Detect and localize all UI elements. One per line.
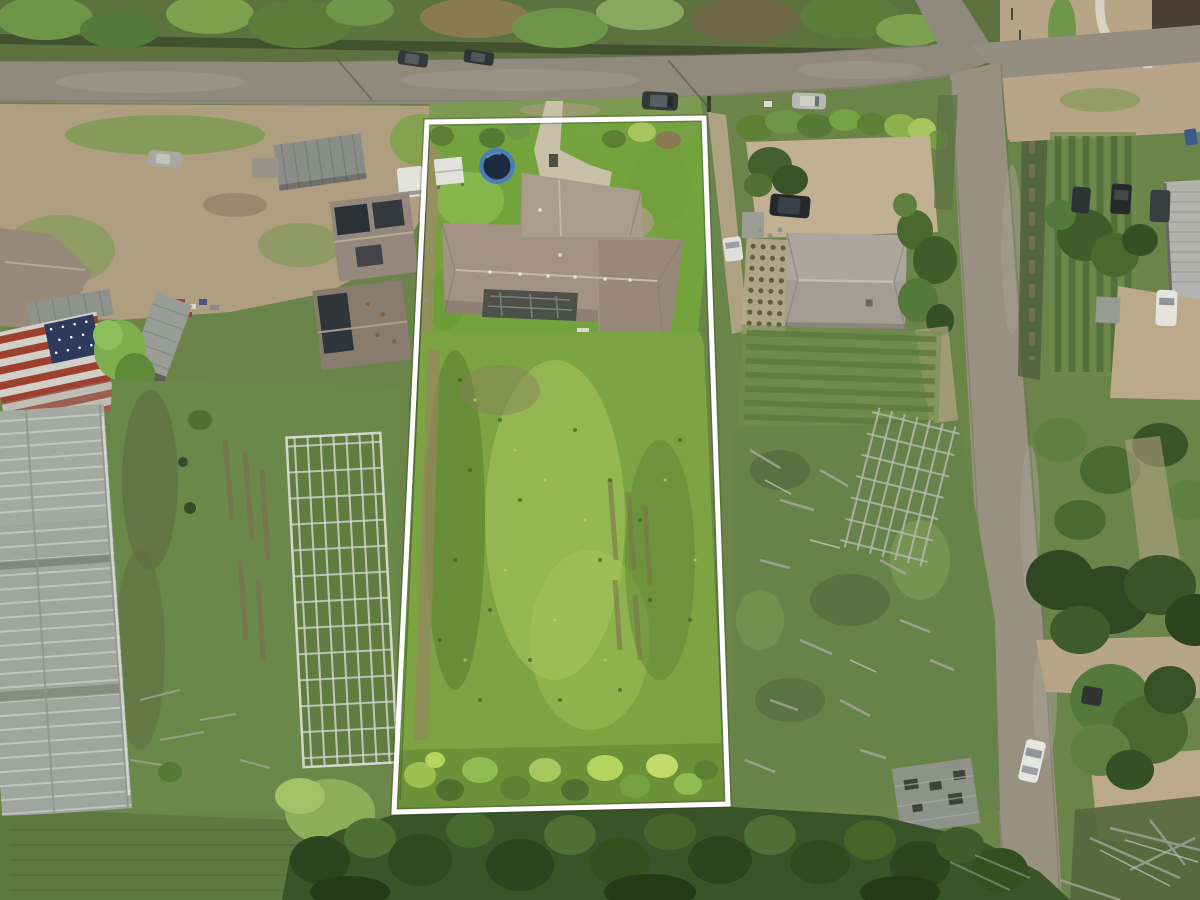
tree bbox=[544, 815, 596, 855]
parked-car-dark-1 bbox=[1071, 186, 1091, 213]
tree bbox=[446, 812, 494, 848]
tree bbox=[486, 839, 554, 891]
parked-car-dark-3 bbox=[1149, 190, 1170, 223]
parked-car-dark-2 bbox=[1110, 183, 1132, 214]
bush bbox=[1054, 500, 1106, 540]
collapsed-patio bbox=[482, 289, 578, 321]
parked-car-under-tree bbox=[1081, 685, 1104, 706]
roof-north-slope bbox=[786, 233, 907, 282]
roof-ridge bbox=[798, 280, 894, 282]
trash-bin bbox=[549, 154, 558, 167]
hedge-bush bbox=[620, 774, 650, 798]
tree bbox=[844, 820, 896, 860]
white-car-neighbor bbox=[722, 236, 743, 262]
dry-brush bbox=[690, 0, 800, 42]
chimney bbox=[866, 299, 873, 306]
dark-object bbox=[184, 502, 196, 514]
tree bbox=[1144, 666, 1196, 714]
hedge-bush bbox=[500, 776, 530, 800]
junk bbox=[210, 305, 219, 310]
garden-rows bbox=[738, 325, 941, 432]
light-patch bbox=[736, 590, 784, 650]
hedge-bush bbox=[436, 779, 464, 801]
tree bbox=[1044, 200, 1076, 230]
van-roof bbox=[777, 197, 800, 215]
dark-patch bbox=[755, 678, 825, 722]
aerial-photo bbox=[0, 0, 1200, 900]
worn-patch bbox=[400, 69, 640, 91]
dark-band bbox=[122, 390, 178, 570]
tree bbox=[744, 815, 796, 855]
mailbox bbox=[764, 101, 772, 107]
tree-cluster bbox=[772, 165, 808, 195]
car-body bbox=[1155, 290, 1177, 327]
car-body bbox=[1081, 685, 1104, 706]
hedge-bush bbox=[529, 758, 561, 782]
solar-house-2 bbox=[312, 280, 411, 370]
solar-panel bbox=[355, 244, 383, 267]
car-windshield bbox=[1159, 298, 1174, 306]
car-windshield bbox=[668, 95, 674, 107]
parked-car-white bbox=[1155, 290, 1177, 327]
light-tree bbox=[275, 778, 325, 814]
worn-patch bbox=[55, 71, 245, 93]
tree bbox=[913, 236, 957, 284]
garden-shed bbox=[742, 212, 764, 238]
tree bbox=[644, 814, 696, 850]
small-shed bbox=[252, 158, 278, 178]
bush bbox=[158, 762, 182, 782]
blue-boat bbox=[1184, 128, 1198, 146]
tree bbox=[688, 836, 752, 884]
outlined-lot bbox=[395, 101, 727, 809]
small-gray-shed bbox=[1095, 296, 1120, 323]
solar-panel bbox=[334, 204, 370, 236]
tree bbox=[893, 193, 917, 217]
car-silver-yard bbox=[147, 150, 182, 169]
suv-dark bbox=[642, 91, 679, 111]
dry-patch bbox=[460, 365, 540, 415]
aerial-photo-canvas bbox=[0, 0, 1200, 900]
hedge-bush bbox=[602, 130, 626, 148]
utility-pole bbox=[707, 96, 711, 112]
hedge-bush bbox=[679, 124, 701, 142]
solar-house-1 bbox=[329, 192, 418, 281]
tree bbox=[344, 818, 396, 858]
solar-panel bbox=[372, 199, 405, 228]
tree bbox=[1106, 750, 1154, 790]
tree-cluster bbox=[744, 173, 772, 197]
hedge-bush bbox=[561, 779, 589, 801]
tree bbox=[936, 827, 984, 863]
car-silver bbox=[792, 92, 827, 109]
bush bbox=[188, 410, 212, 430]
junk bbox=[199, 299, 207, 305]
tree bbox=[1050, 606, 1110, 654]
mud-patch bbox=[203, 193, 267, 217]
plant-nursery bbox=[742, 238, 791, 336]
hedge-bush bbox=[646, 754, 678, 778]
tree bbox=[1122, 224, 1158, 256]
boat-hull bbox=[1184, 128, 1198, 146]
car-roof bbox=[650, 94, 668, 107]
car-roof bbox=[1114, 190, 1129, 201]
hedge-bush bbox=[574, 124, 602, 142]
hedge-bush bbox=[694, 760, 718, 780]
hedge-dry-patch bbox=[655, 131, 681, 149]
hedge-bush bbox=[479, 128, 505, 148]
trellis-frame bbox=[286, 433, 397, 767]
hedge-bush bbox=[857, 113, 887, 135]
tree bbox=[93, 320, 123, 350]
tree bbox=[388, 834, 452, 886]
car-roof bbox=[800, 96, 815, 107]
tree bbox=[790, 840, 850, 884]
car-body bbox=[1071, 186, 1091, 213]
bush bbox=[1034, 418, 1086, 462]
hedge-bush bbox=[829, 109, 861, 131]
dirt-lot bbox=[1110, 286, 1200, 400]
grass-patch bbox=[1060, 88, 1140, 112]
hedge-bush bbox=[425, 752, 445, 768]
hedge-bush bbox=[587, 755, 623, 781]
car-body bbox=[1149, 190, 1170, 223]
black-minivan bbox=[769, 193, 811, 218]
tree-blob bbox=[80, 12, 160, 48]
dead-brush-corner bbox=[1070, 796, 1200, 900]
car-roof bbox=[404, 53, 419, 65]
neighbor-house bbox=[785, 233, 907, 329]
tree-blob bbox=[512, 8, 608, 48]
hedge-bush bbox=[797, 114, 833, 138]
grass-patch bbox=[258, 223, 342, 267]
hedge-bush bbox=[430, 126, 454, 146]
hedge-bush bbox=[462, 757, 498, 783]
shed-roof bbox=[1095, 296, 1120, 323]
car-roof bbox=[156, 153, 171, 164]
white-canopy-shed bbox=[434, 157, 465, 188]
dark-patch bbox=[810, 574, 890, 626]
dark-object bbox=[178, 457, 188, 467]
trampoline bbox=[479, 148, 515, 184]
car-windshield bbox=[815, 96, 819, 106]
car-body bbox=[722, 236, 743, 262]
grass-patch bbox=[65, 115, 265, 155]
worn-patch bbox=[798, 61, 922, 79]
hedge-bush bbox=[628, 122, 656, 142]
